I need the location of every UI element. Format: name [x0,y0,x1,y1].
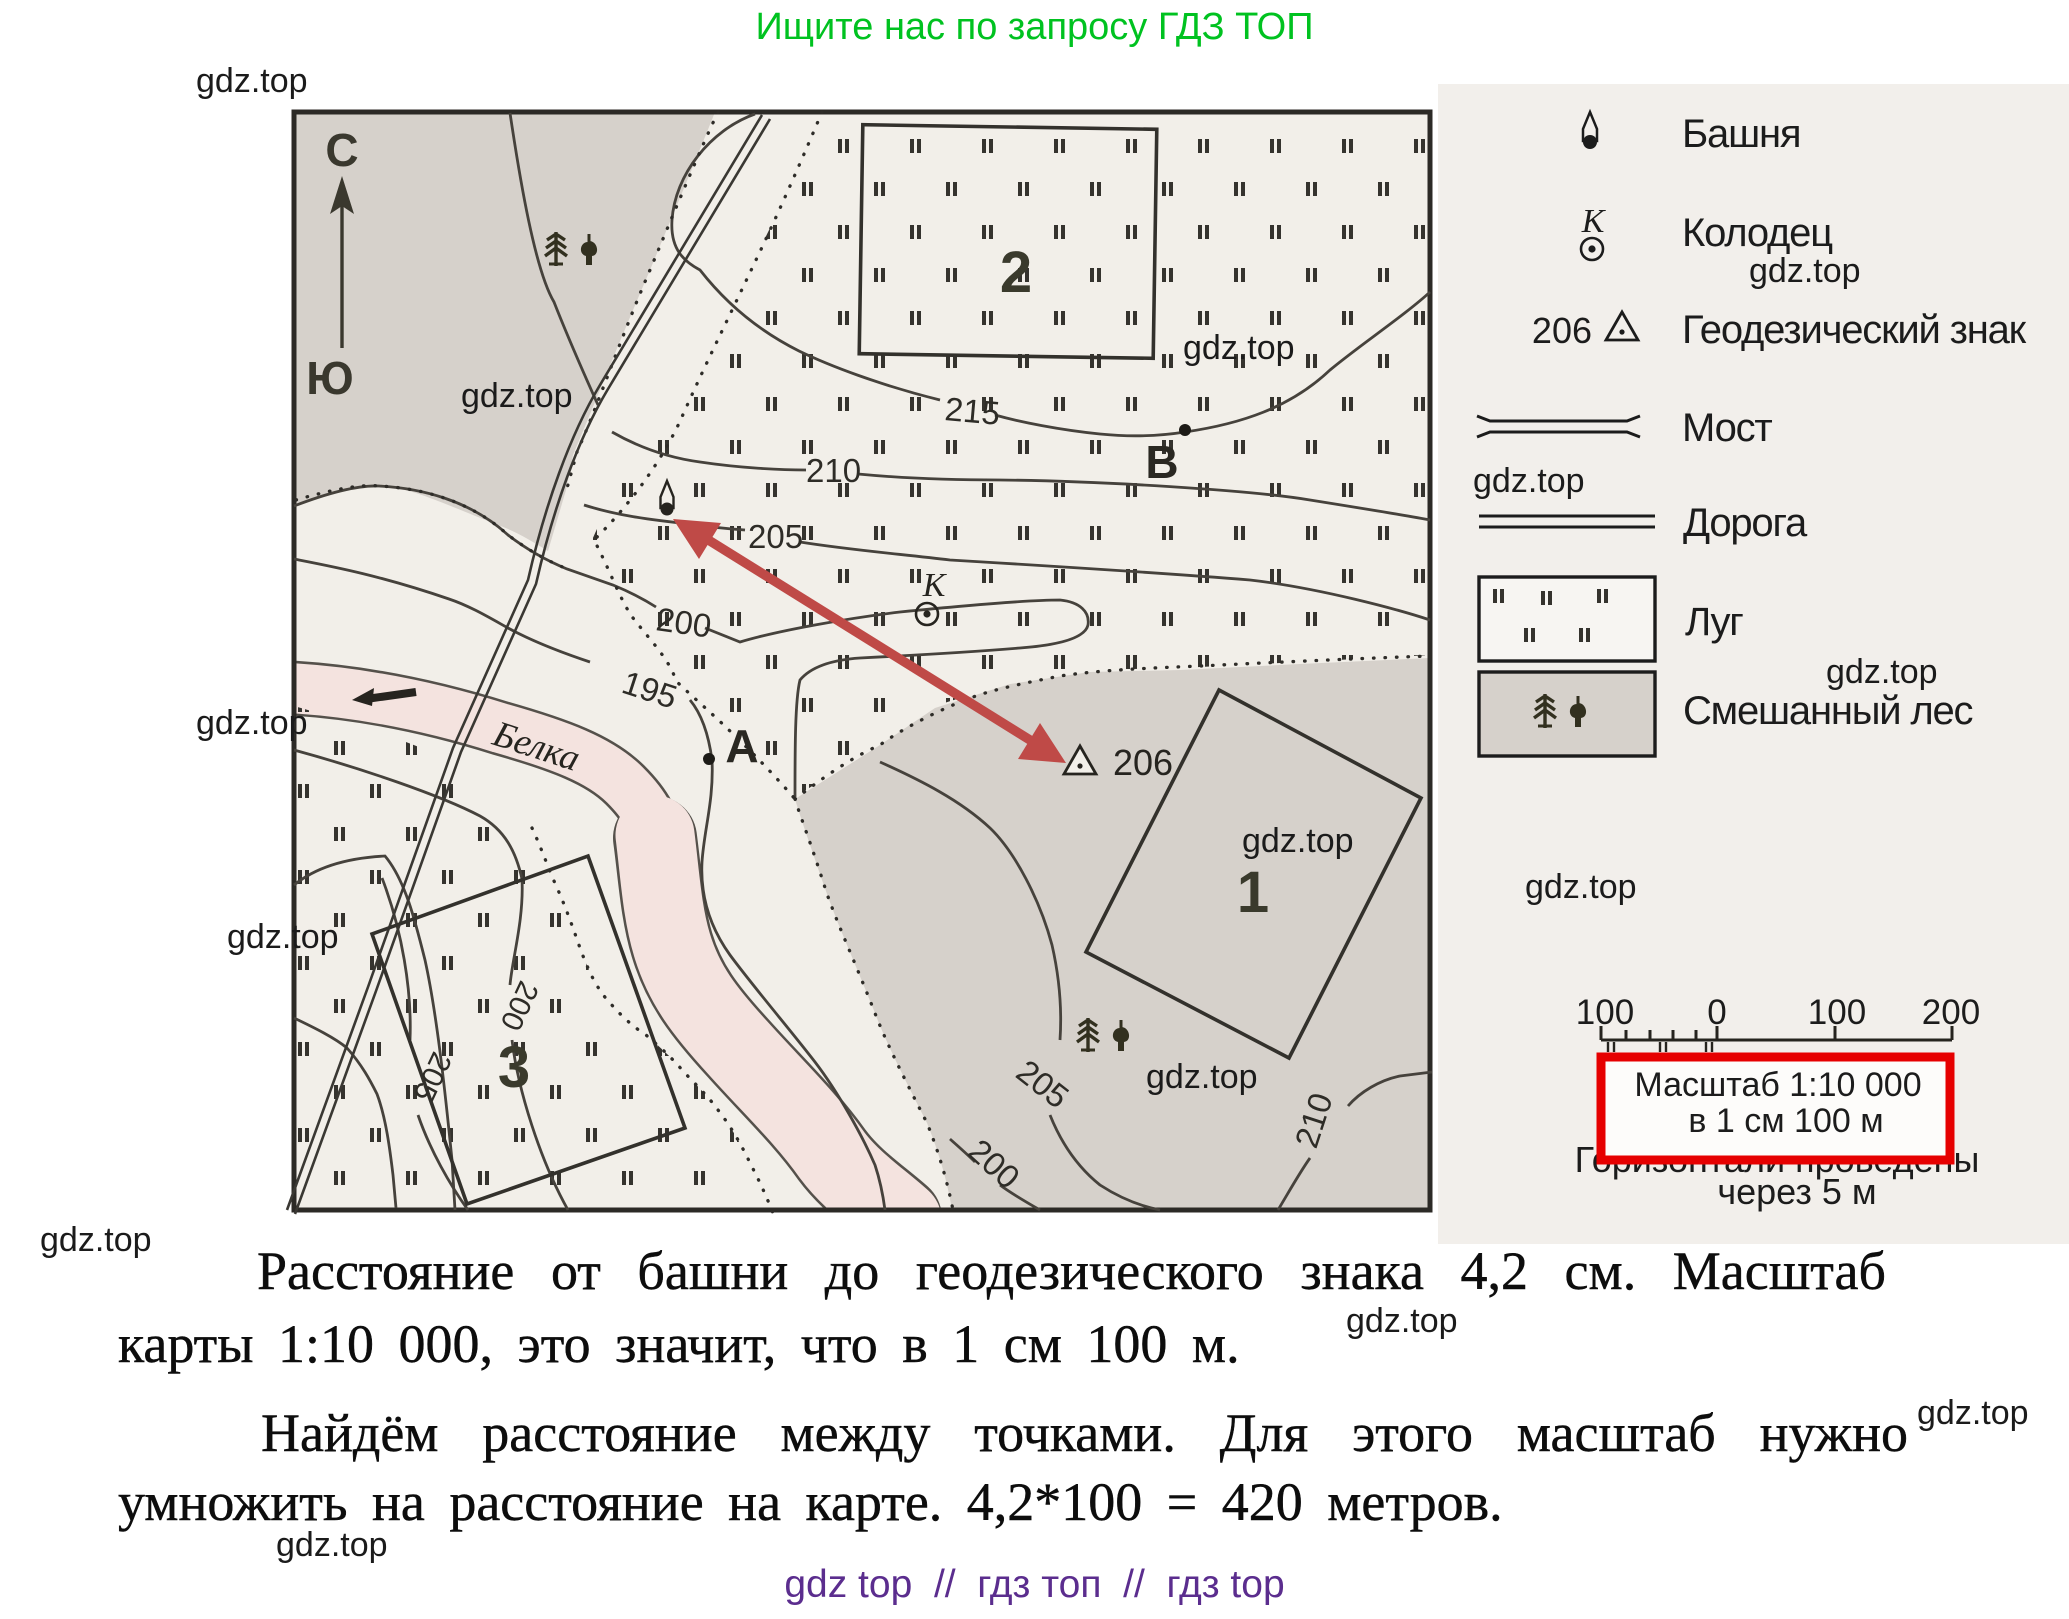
svg-text:В: В [1145,436,1178,488]
svg-text:К: К [1581,203,1607,240]
svg-text:1: 1 [1237,860,1269,925]
svg-text:215: 215 [943,390,1001,432]
svg-text:2: 2 [1000,240,1032,305]
svg-text:100: 100 [1808,993,1866,1032]
svg-text:210: 210 [806,452,861,489]
svg-text:206: 206 [1113,742,1173,783]
svg-text:А: А [725,720,758,772]
svg-text:С: С [325,124,358,176]
svg-text:100: 100 [1576,993,1634,1032]
svg-text:Ю: Ю [306,352,353,404]
svg-text:200: 200 [654,600,714,644]
svg-text:0: 0 [1707,993,1726,1032]
svg-text:3: 3 [498,1035,530,1100]
svg-text:Масштаб 1:10 000: Масштаб 1:10 000 [1634,1066,1921,1104]
svg-text:через 5 м: через 5 м [1717,1171,1876,1212]
svg-text:200: 200 [1922,993,1980,1032]
svg-text:205: 205 [748,518,803,555]
svg-text:К: К [922,567,948,604]
svg-text:в 1 см 100 м: в 1 см 100 м [1688,1102,1883,1140]
svg-text:206: 206 [1532,310,1592,351]
